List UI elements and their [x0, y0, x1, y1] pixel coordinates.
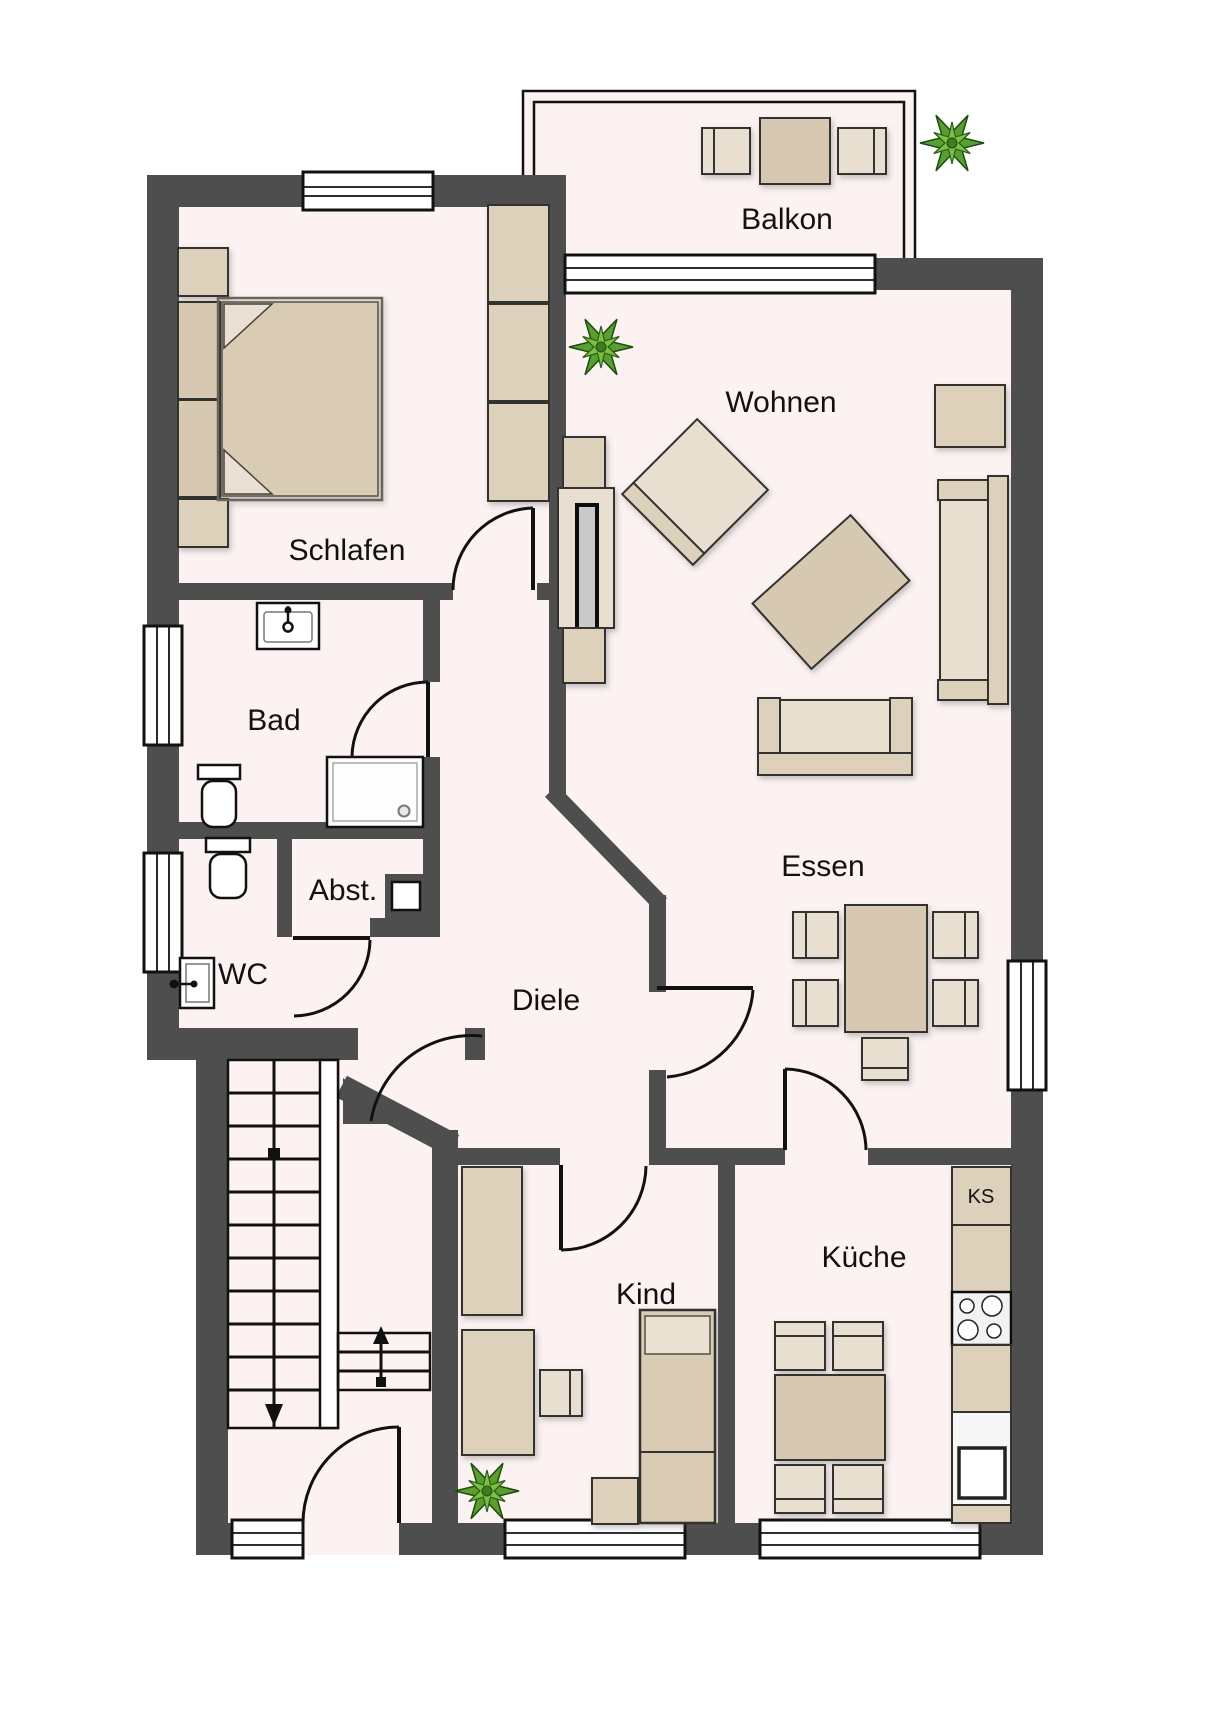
nightstand: [178, 248, 228, 296]
sofa: [938, 476, 1008, 704]
dining-table: [845, 905, 927, 1032]
window-stairwell: [232, 1520, 303, 1558]
chair: [933, 980, 978, 1026]
bed: [640, 1310, 715, 1523]
chair: [775, 1322, 825, 1370]
chair: [862, 1038, 908, 1080]
floor-plan: Balkon Wohnen Schlafen Bad Abst. WC Diel…: [0, 0, 1223, 1716]
kitchen-table: [775, 1375, 885, 1460]
room-label-abst: Abst.: [309, 874, 377, 907]
nightstand: [178, 499, 228, 547]
fridge-label-ks: KS: [968, 1186, 995, 1208]
counter: [952, 1345, 1011, 1412]
window-wc: [144, 853, 182, 972]
desk-chair: [540, 1370, 582, 1416]
balkon-furniture: [702, 118, 886, 184]
chair: [793, 980, 838, 1026]
room-label-wc: WC: [218, 958, 268, 991]
balcony-chair: [702, 128, 750, 174]
chair: [833, 1322, 883, 1370]
window-bad: [144, 626, 182, 745]
headboard: [178, 302, 220, 399]
balcony-table: [760, 118, 830, 184]
chair: [933, 912, 978, 958]
balcony-chair: [838, 128, 886, 174]
room-label-kueche: Küche: [821, 1241, 906, 1274]
wardrobe: [462, 1167, 522, 1315]
sink: [952, 1412, 1011, 1505]
potted-plant: [920, 115, 984, 170]
nightstand: [592, 1478, 638, 1524]
toilet: [198, 765, 240, 827]
side-table: [935, 385, 1005, 447]
abst-shaft: [392, 882, 420, 910]
chair: [775, 1465, 825, 1513]
double-bed: [218, 298, 382, 500]
desk: [462, 1330, 534, 1455]
window-balcony-door: [565, 255, 875, 293]
toilet: [206, 838, 250, 898]
stair-stringer: [320, 1060, 338, 1428]
room-label-wohnen: Wohnen: [725, 386, 836, 419]
window-kueche: [760, 1520, 980, 1558]
headboard: [178, 400, 220, 497]
counter: [952, 1225, 1011, 1292]
room-label-bad: Bad: [247, 704, 300, 737]
chair: [833, 1465, 883, 1513]
tv-lowboard: [558, 437, 614, 683]
stove: [952, 1292, 1011, 1345]
wardrobe: [488, 205, 549, 501]
sofa: [758, 698, 912, 775]
room-label-schlafen: Schlafen: [289, 534, 406, 567]
counter: [952, 1505, 1011, 1523]
room-label-balkon: Balkon: [741, 203, 833, 236]
shower: [327, 757, 423, 827]
room-label-essen: Essen: [781, 850, 864, 883]
window-kind: [505, 1520, 685, 1558]
chair: [793, 912, 838, 958]
room-label-diele: Diele: [512, 984, 580, 1017]
tv: [577, 505, 597, 633]
room-label-kind: Kind: [616, 1278, 676, 1311]
washbasin: [257, 603, 319, 649]
window-essen: [1008, 961, 1046, 1090]
window-schlafen: [303, 172, 433, 210]
